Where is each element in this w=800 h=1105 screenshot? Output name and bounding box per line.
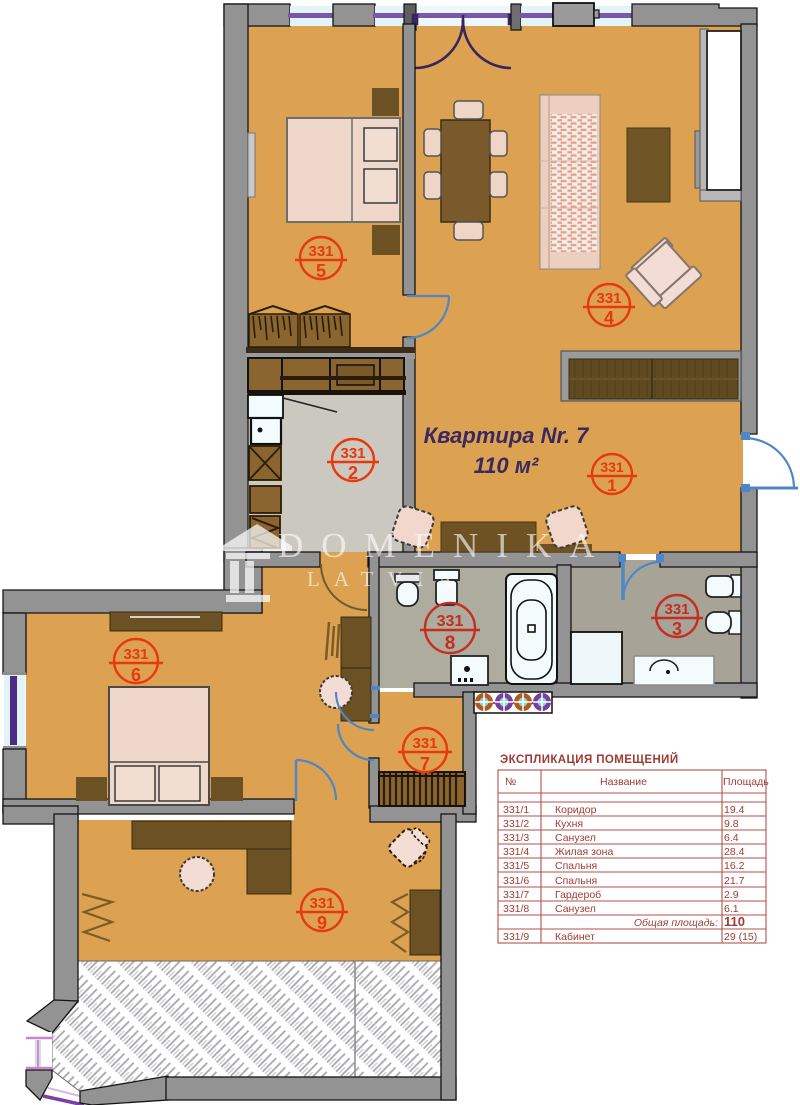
svg-text:331: 331: [664, 601, 689, 618]
svg-text:21.7: 21.7: [724, 875, 745, 887]
svg-text:331/8: 331/8: [503, 903, 529, 915]
svg-text:331: 331: [437, 613, 464, 630]
svg-text:Площадь: Площадь: [723, 776, 769, 788]
svg-text:Общая площадь:: Общая площадь:: [634, 917, 718, 929]
svg-text:Кабинет: Кабинет: [555, 931, 595, 943]
svg-text:331: 331: [123, 646, 148, 663]
svg-text:1: 1: [607, 476, 616, 495]
svg-text:331/2: 331/2: [503, 818, 529, 830]
svg-text:4: 4: [604, 308, 614, 328]
svg-text:2: 2: [348, 463, 358, 483]
svg-text:6: 6: [131, 665, 141, 685]
svg-text:7: 7: [420, 754, 430, 774]
svg-text:LATVIA: LATVIA: [307, 567, 467, 591]
svg-text:331/6: 331/6: [503, 875, 529, 887]
svg-text:8: 8: [445, 633, 456, 654]
svg-text:Кухня: Кухня: [555, 818, 583, 830]
svg-text:110 м²: 110 м²: [474, 453, 539, 478]
svg-text:29 (15): 29 (15): [724, 931, 757, 943]
svg-text:DOMENIKA: DOMENIKA: [278, 526, 613, 565]
svg-text:16.2: 16.2: [724, 860, 745, 872]
svg-text:2.9: 2.9: [724, 889, 739, 901]
svg-text:9.8: 9.8: [724, 818, 739, 830]
svg-text:331/4: 331/4: [503, 846, 529, 858]
svg-text:ЭКСПЛИКАЦИЯ ПОМЕЩЕНИЙ: ЭКСПЛИКАЦИЯ ПОМЕЩЕНИЙ: [500, 753, 679, 766]
svg-text:331/1: 331/1: [503, 804, 529, 816]
svg-text:331: 331: [596, 290, 621, 307]
svg-text:№: №: [505, 776, 516, 788]
svg-text:Санузел: Санузел: [555, 903, 596, 915]
svg-text:331/5: 331/5: [503, 860, 529, 872]
svg-text:Жилая зона: Жилая зона: [555, 846, 613, 858]
svg-text:331: 331: [340, 445, 365, 462]
svg-text:331: 331: [309, 895, 334, 912]
svg-text:110: 110: [724, 914, 745, 929]
svg-text:Спальня: Спальня: [555, 860, 597, 872]
svg-text:331/9: 331/9: [503, 931, 529, 943]
svg-text:331: 331: [600, 459, 624, 475]
svg-text:Квартира Nr. 7: Квартира Nr. 7: [424, 423, 590, 448]
svg-text:Санузел: Санузел: [555, 832, 596, 844]
svg-text:28.4: 28.4: [724, 846, 745, 858]
svg-text:9: 9: [317, 913, 327, 933]
svg-text:5: 5: [316, 261, 326, 281]
svg-text:3: 3: [672, 619, 682, 639]
svg-text:19.4: 19.4: [724, 804, 745, 816]
svg-text:331: 331: [412, 735, 437, 752]
svg-text:331/7: 331/7: [503, 889, 529, 901]
svg-text:331: 331: [308, 243, 333, 260]
svg-text:331/3: 331/3: [503, 832, 529, 844]
svg-text:Гардероб: Гардероб: [555, 889, 601, 901]
svg-text:6.4: 6.4: [724, 832, 739, 844]
svg-text:Название: Название: [600, 776, 647, 788]
svg-text:Спальня: Спальня: [555, 875, 597, 887]
svg-text:Коридор: Коридор: [555, 804, 597, 816]
